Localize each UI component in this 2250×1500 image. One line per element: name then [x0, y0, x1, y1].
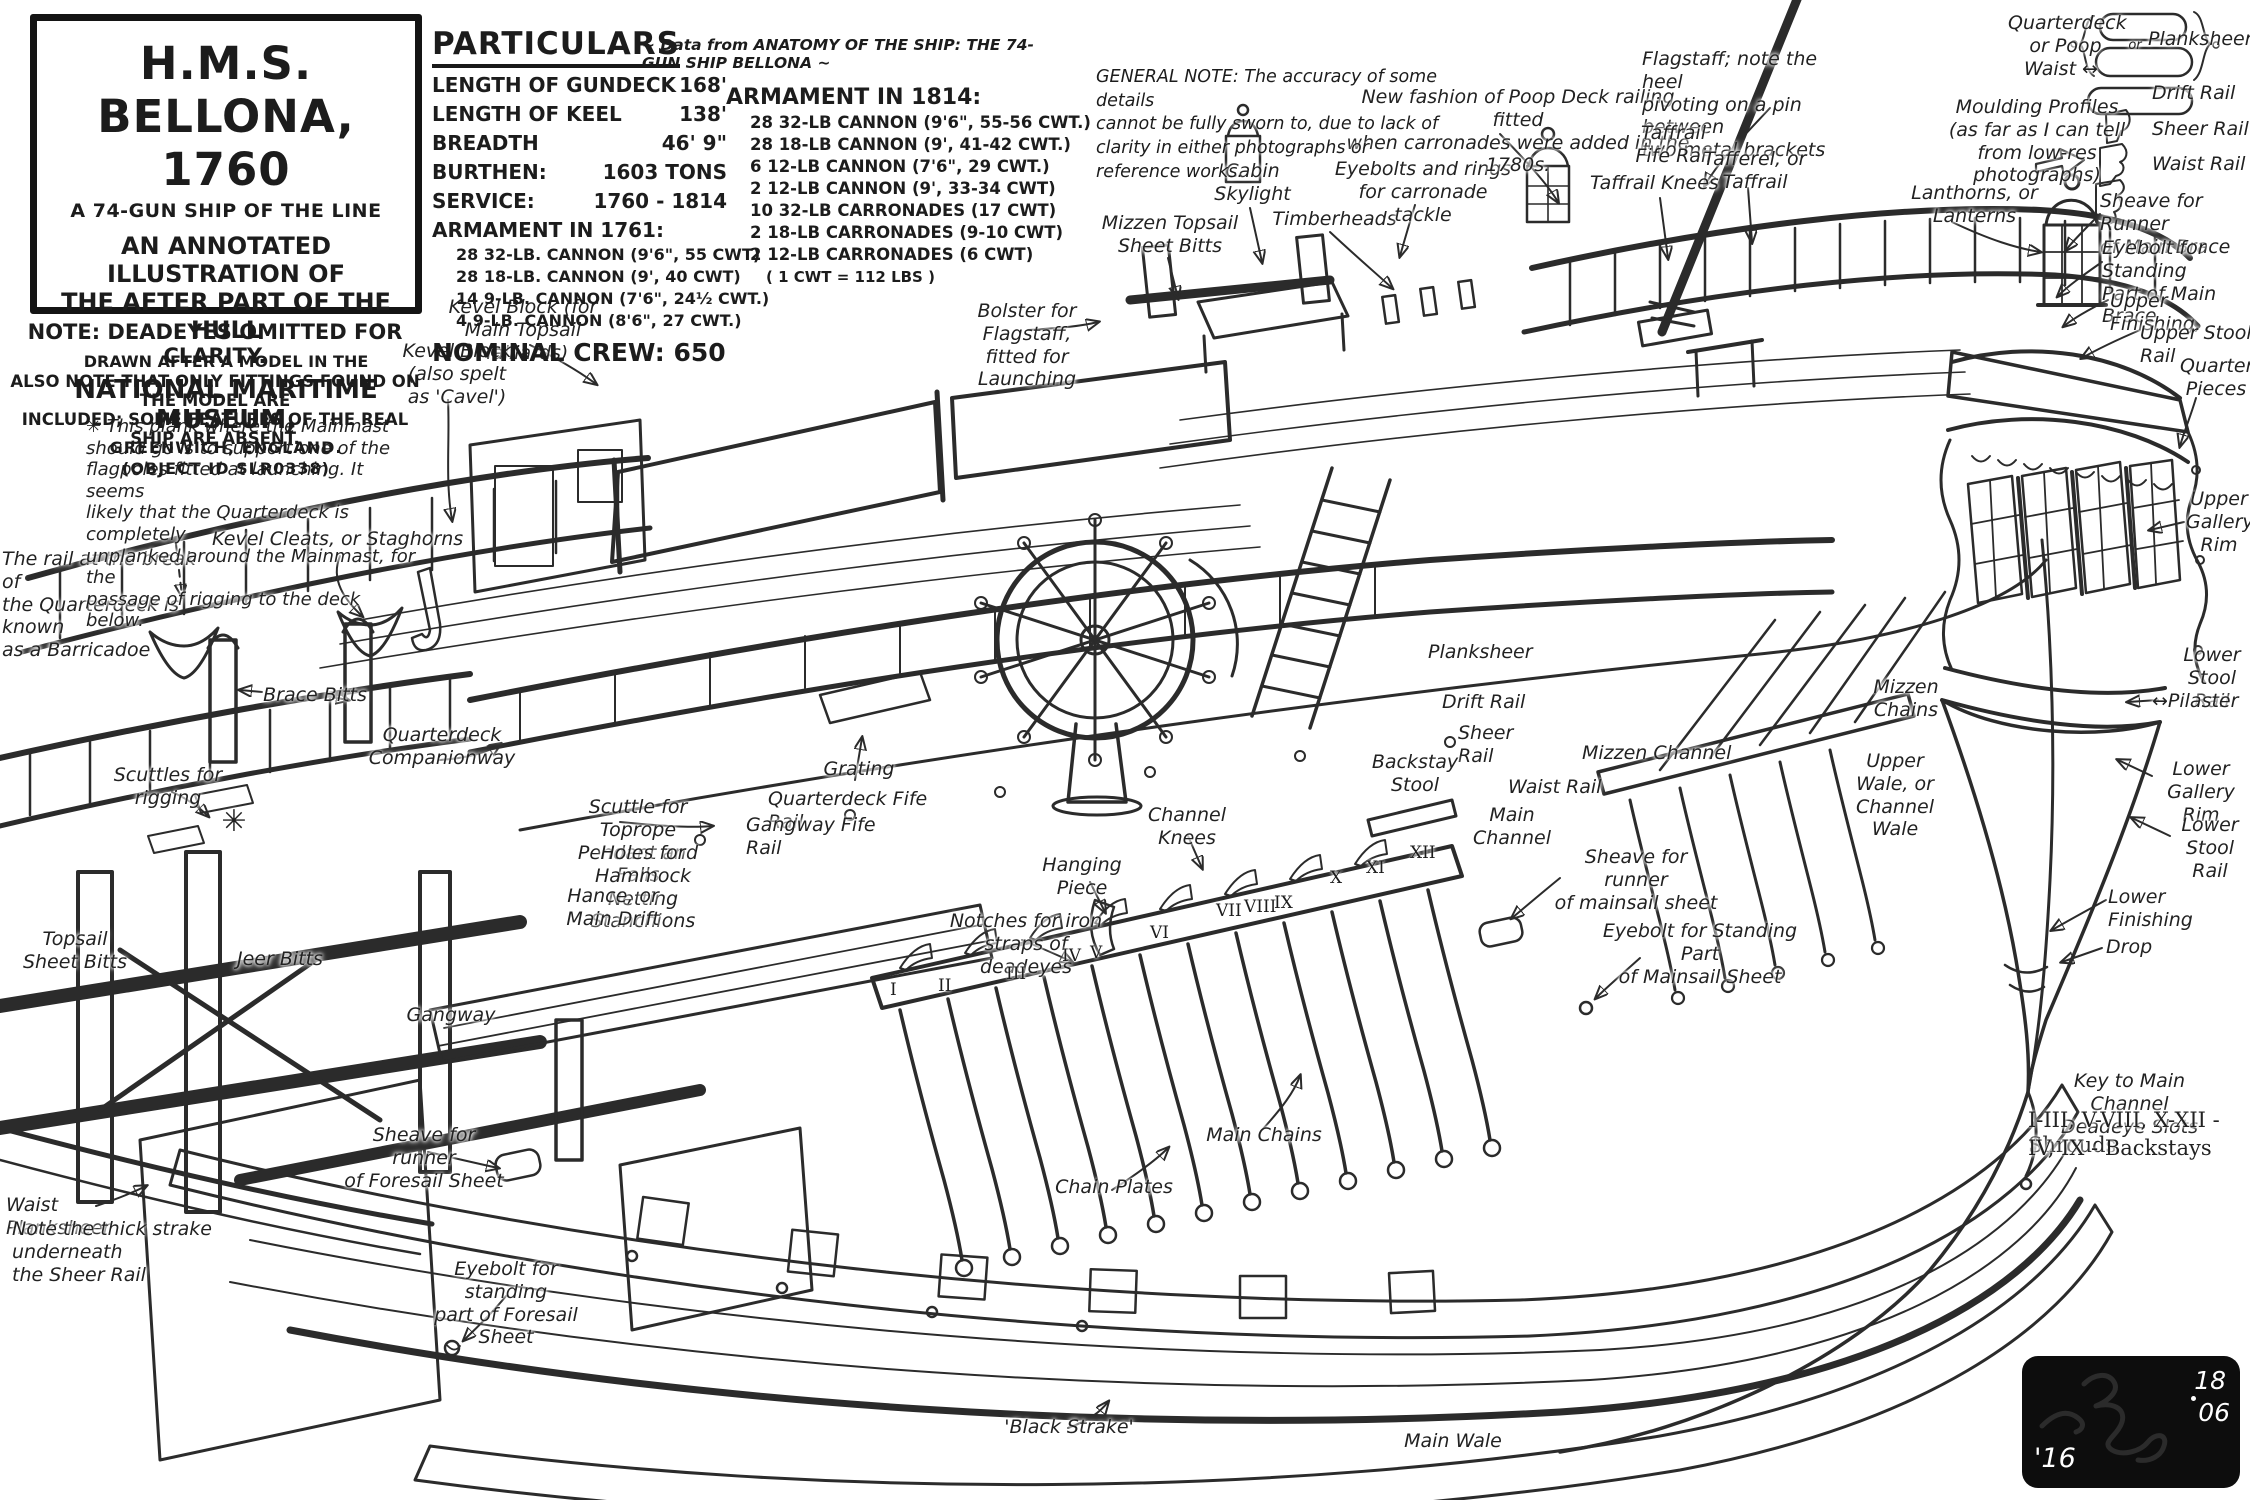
list-line: 6 12-LB CANNON (7'6", 29 CWT.) — [750, 157, 1086, 176]
annotation-label: Main Chains — [1200, 1124, 1328, 1147]
list-line: 2 18-LB CARRONADES (9-10 CWT) — [750, 223, 1086, 242]
deadeye-slot-numeral: IX — [1274, 893, 1293, 913]
spec-row: LENGTH OF KEEL 138' — [432, 102, 727, 126]
list-line: 2 12-LB CARRONADES (6 CWT) — [750, 245, 1086, 264]
spec-value: 168' — [679, 73, 727, 97]
annotation-label: IV, IX - Backstays — [2028, 1136, 2213, 1161]
annotation-label: Waist ↔ — [2024, 58, 2109, 81]
annotation-label: Chain Plates — [1050, 1176, 1178, 1199]
annotation-label: Sheer Rail — [1458, 722, 1554, 768]
armament-1761-heading: ARMAMENT IN 1761: — [432, 218, 732, 242]
general-note: GENERAL NOTE: The accuracy of some detai… — [1096, 66, 1446, 184]
spec-label: BREADTH — [432, 131, 539, 155]
deadeye-slot-numeral: VIII — [1244, 897, 1276, 917]
annotation-label: or — [2120, 38, 2150, 54]
cwt-note: ( 1 CWT = 112 LBS ) — [766, 268, 1086, 286]
annotation-label: Eyebolt for Standing Part of Mainsail Sh… — [1590, 920, 1810, 988]
armament-1814-panel: ARMAMENT IN 1814: 28 32-LB CANNON (9'6",… — [726, 80, 1086, 286]
annotation-label: Sheave for runner of Foresail Sheet — [340, 1124, 508, 1192]
mainsail-fittings — [1478, 916, 1592, 1014]
annotation-label: Topsail Sheet Bitts — [16, 928, 134, 974]
annotation-label: Planksheer — [1428, 641, 1540, 664]
annotation-label: Main Channel — [1470, 804, 1554, 850]
subtitle: A 74-GUN SHIP OF THE LINE — [37, 200, 415, 222]
poop-railing — [1524, 209, 2198, 396]
annotation-label: Channel Knees — [1140, 804, 1234, 850]
companion-ladder — [1252, 468, 1390, 728]
spec-label: LENGTH OF KEEL — [432, 102, 622, 126]
nominal-crew: NOMINAL CREW: 650 — [432, 338, 732, 367]
spec-label: BURTHEN: — [432, 160, 547, 184]
annotation-label: Upper Wale, or Channel Wale — [1848, 750, 1942, 841]
title-block: H.M.S. BELLONA, 1760 A 74-GUN SHIP OF TH… — [30, 14, 422, 314]
signature-date-bottom: 06 — [2198, 1398, 2230, 1427]
deadeye-slot-numeral: III — [1006, 964, 1026, 984]
deadeye-slot-numeral: II — [938, 976, 951, 996]
annotation-label: Main Wale — [1402, 1430, 1504, 1453]
spec-row: BREADTH 46' 9" — [432, 131, 727, 155]
annotation-label: Drift Rail — [2152, 82, 2247, 105]
annotation-label: Gangway — [402, 1004, 500, 1027]
list-line: clarity in either photographs or — [1096, 137, 1446, 161]
annotation-label: Taffrail Knees — [1590, 172, 1735, 195]
deck-planking — [320, 350, 1970, 668]
annotation-label: Waist Rail — [2152, 153, 2250, 176]
armament-1814-heading: ARMAMENT IN 1814: — [726, 85, 1086, 110]
spec-label: SERVICE: — [432, 189, 535, 213]
annotation-label: Upper Gallery Rim — [2186, 488, 2250, 556]
annotation-label: Mizzen Channel — [1582, 742, 1740, 765]
annotation-label: Bolster for Flagstaff, fitted for Launch… — [938, 300, 1116, 391]
annotation-label: Brace Bitts — [256, 684, 374, 707]
signature-date-top: 18 — [2194, 1366, 2226, 1395]
spec-label: LENGTH OF GUNDECK — [432, 73, 676, 97]
annotation-label: Scuttles for rigging — [112, 764, 224, 810]
spec-value: 46' 9" — [662, 131, 727, 155]
annotation-label: Lanthorns, or Lanterns — [1902, 182, 2047, 228]
list-line: 14 9-LB. CANNON (7'6", 24½ CWT.) — [456, 289, 732, 308]
deadeye-slot-numeral: IV — [1062, 946, 1081, 966]
annotation-label: Lower Stool Rail — [2168, 814, 2250, 882]
deadeye-slot-numeral: V — [1090, 943, 1102, 963]
annotation-label: Lower Finishing — [2108, 886, 2246, 932]
deadeye-slot-numeral: VII — [1216, 901, 1242, 921]
spec-row: BURTHEN: 1603 TONS — [432, 160, 727, 184]
list-line: 28 18-LB CANNON (9', 41-42 CWT.) — [750, 135, 1086, 154]
annotation-label: Mizzen Topsail Sheet Bitts — [1100, 212, 1240, 258]
list-line: 2 12-LB CANNON (9', 33-34 CWT) — [750, 179, 1086, 198]
spec-row: LENGTH OF GUNDECK 168' — [432, 73, 727, 97]
annotation-label: Hance, or Main Drift — [560, 885, 666, 931]
deadeye-slot-numeral: XII — [1410, 843, 1436, 863]
list-line: 28 18-LB. CANNON (9', 40 CWT) — [456, 267, 732, 286]
list-line: 28 32-LB. CANNON (9'6", 55 CWT) — [456, 245, 732, 264]
illustration-canvas: Mizzen Topsail Sheet BittsCabin Skylight… — [0, 0, 2250, 1500]
spec-value: 1760 - 1814 — [593, 189, 727, 213]
annotation-label: Grating — [815, 758, 903, 781]
annotation-label: Planksheers — [2148, 28, 2248, 51]
annotation-label: Backstay Stool — [1368, 751, 1462, 797]
deadeyes-note: NOTE: DEADEYES OMITTED FOR CLARITY. ALSO… — [0, 320, 430, 448]
annotation-label: Gangway Fife Rail — [746, 814, 914, 860]
title-line: AN ANNOTATED ILLUSTRATION OF — [37, 232, 415, 288]
artist-signature-block: '16 18 06 — [2022, 1356, 2240, 1488]
annotation-label: Drop — [2106, 936, 2166, 959]
annotation-label: Waist Rail — [1508, 776, 1604, 799]
deadeye-slot-numeral: XI — [1366, 858, 1385, 878]
deadeye-slot-numeral: X — [1330, 868, 1342, 888]
annotation-label: Moulding Profiles (as far as I can tell … — [1912, 96, 2162, 187]
data-source-note: ~ Data from ANATOMY OF THE SHIP: THE 74-… — [642, 36, 1042, 72]
list-line: 4 9-LB. CANNON (8'6", 27 CWT.) — [456, 311, 732, 330]
spec-row: SERVICE: 1760 - 1814 — [432, 189, 727, 213]
annotation-label: 'Black Strake' — [1000, 1416, 1138, 1439]
note-line: INCLUDED; SOME FEATURES OF THE REAL SHIP… — [0, 410, 430, 448]
ships-wheel — [975, 514, 1237, 815]
list-line: 28 32-LB CANNON (9'6", 55-56 CWT.) — [750, 113, 1086, 132]
note-line: ALSO NOTE THAT ONLY FITTINGS FOUND ON TH… — [0, 372, 430, 410]
signature-dot — [2191, 1396, 2196, 1401]
lattice-screens — [612, 362, 1230, 572]
annotation-label: Jeer Bitts — [226, 948, 334, 971]
annotation-label: Eyebolt for standing part of Foresail Sh… — [412, 1258, 600, 1349]
armament-1761-list: 28 32-LB. CANNON (9'6", 55 CWT)28 18-LB.… — [432, 245, 732, 330]
spec-value: 138' — [679, 102, 727, 126]
armament-1814-list: 28 32-LB CANNON (9'6", 55-56 CWT.)28 18-… — [726, 113, 1086, 264]
annotation-label: ↔Pilaster — [2152, 690, 2250, 713]
general-note-lines: GENERAL NOTE: The accuracy of some detai… — [1096, 66, 1446, 184]
annotation-label: Quarterdeck Companionway — [368, 724, 516, 770]
annotation-label: Sheave for runner of mainsail sheet — [1552, 846, 1720, 914]
annotation-label: Sheer Rail — [2152, 118, 2250, 141]
gunport-lids — [627, 1197, 1435, 1331]
deadeye-slot-numeral: I — [890, 980, 897, 1000]
object-id: (OBJECT ID SLR0338) — [37, 459, 415, 478]
annotation-label: Quarterdeck or Poop — [2008, 12, 2123, 58]
annotation-label: Drift Rail — [1442, 691, 1536, 714]
page-title: H.M.S. BELLONA, 1760 — [37, 37, 415, 196]
list-line: cannot be fully sworn to, due to lack of — [1096, 113, 1446, 137]
list-line: reference works. — [1096, 161, 1446, 185]
list-line: GENERAL NOTE: The accuracy of some detai… — [1096, 66, 1446, 113]
deadeye-slot-numeral: VI — [1150, 923, 1169, 943]
note-line: NOTE: DEADEYES OMITTED FOR CLARITY. — [0, 320, 430, 368]
annotation-label: Mizzen Chains — [1864, 676, 1948, 722]
annotation-label: Note the thick strake underneath the She… — [12, 1218, 250, 1286]
annotation-label: Quarter Pieces — [2180, 355, 2250, 401]
signature-year: '16 — [2034, 1443, 2076, 1474]
annotation-label: Hanging Piece — [1036, 854, 1128, 900]
list-line: 10 32-LB CARRONADES (17 CWT) — [750, 201, 1086, 220]
spec-value: 1603 TONS — [603, 160, 727, 184]
particulars-panel: PARTICULARS LENGTH OF GUNDECK 168' LENGT… — [432, 26, 732, 367]
